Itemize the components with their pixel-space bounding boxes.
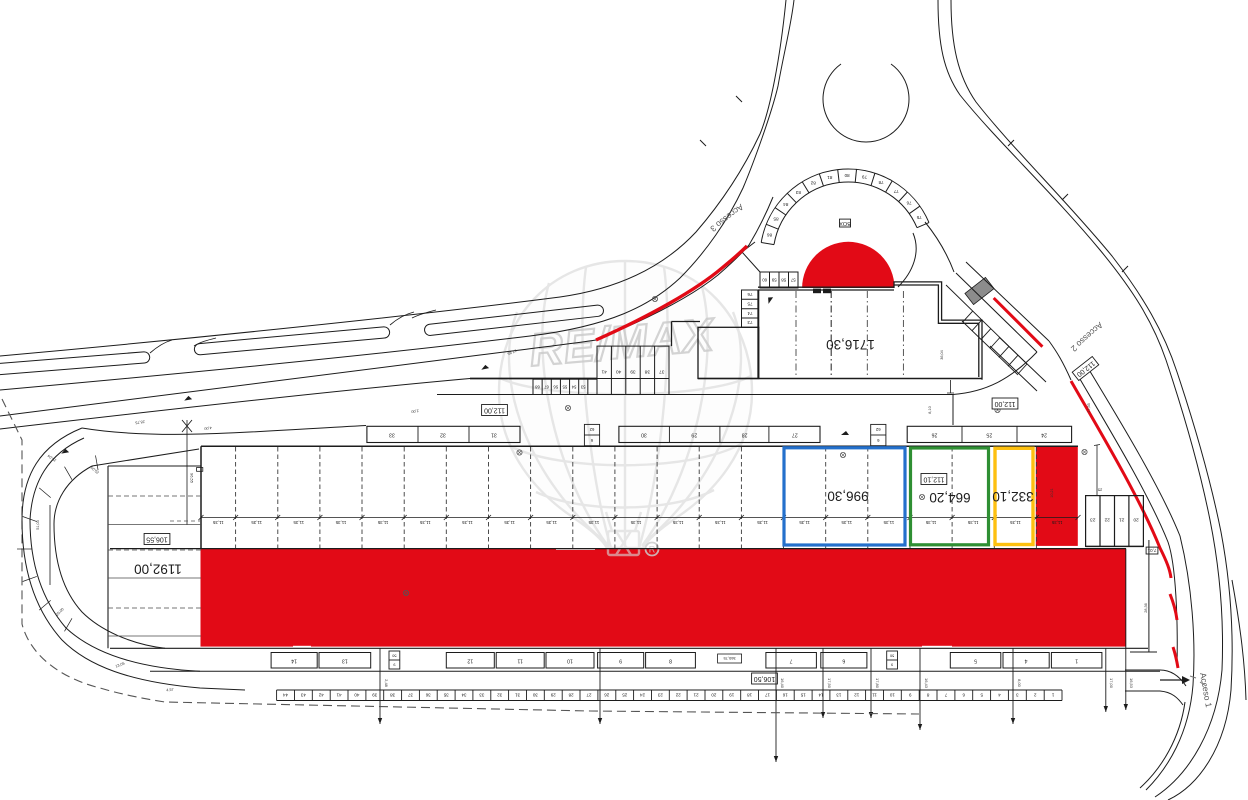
svg-text:54: 54 — [571, 385, 576, 390]
svg-text:7: 7 — [790, 657, 793, 663]
svg-text:43: 43 — [300, 693, 306, 698]
svg-text:17,80: 17,80 — [875, 678, 880, 689]
svg-text:112,10: 112,10 — [923, 476, 944, 483]
svg-text:4: 4 — [1025, 657, 1028, 663]
svg-text:75: 75 — [916, 215, 922, 220]
svg-text:11,35: 11,35 — [672, 520, 683, 525]
svg-text:360,75: 360,75 — [723, 656, 736, 661]
svg-text:9: 9 — [619, 657, 622, 663]
svg-text:19: 19 — [729, 693, 735, 698]
svg-text:34: 34 — [461, 693, 467, 698]
svg-text:6: 6 — [842, 657, 845, 663]
svg-text:996,30: 996,30 — [827, 489, 868, 504]
svg-text:58: 58 — [781, 278, 786, 283]
svg-text:82: 82 — [810, 181, 816, 186]
svg-text:10: 10 — [889, 693, 895, 698]
svg-text:20: 20 — [1133, 517, 1139, 523]
svg-text:77: 77 — [893, 189, 899, 194]
svg-text:73: 73 — [747, 320, 753, 325]
svg-text:36: 36 — [425, 693, 431, 698]
svg-text:36,04: 36,04 — [940, 350, 944, 360]
svg-text:62: 62 — [875, 427, 880, 432]
svg-text:11,35: 11,35 — [1010, 520, 1021, 525]
svg-text:11,35: 11,35 — [546, 520, 557, 525]
svg-text:8: 8 — [669, 657, 672, 663]
svg-text:35: 35 — [443, 693, 449, 698]
svg-text:11,35: 11,35 — [757, 520, 768, 525]
svg-text:23: 23 — [657, 693, 663, 698]
svg-text:11: 11 — [517, 657, 522, 663]
svg-text:11: 11 — [872, 693, 877, 698]
svg-text:60: 60 — [762, 278, 767, 283]
svg-text:24: 24 — [640, 693, 646, 698]
svg-text:78: 78 — [878, 180, 884, 185]
svg-text:22: 22 — [675, 693, 681, 698]
svg-text:27: 27 — [586, 693, 592, 698]
svg-text:53: 53 — [580, 385, 585, 390]
svg-text:29: 29 — [550, 693, 556, 698]
svg-text:40: 40 — [354, 693, 360, 698]
svg-text:10: 10 — [567, 657, 573, 663]
svg-text:23: 23 — [1090, 517, 1096, 523]
svg-text:11,35: 11,35 — [504, 520, 515, 525]
svg-text:41: 41 — [336, 693, 342, 698]
svg-text:17: 17 — [765, 693, 771, 698]
svg-text:14: 14 — [291, 657, 297, 663]
svg-text:83: 83 — [795, 190, 801, 195]
svg-text:R: R — [649, 545, 656, 555]
svg-text:9: 9 — [393, 663, 395, 667]
svg-text:10,21: 10,21 — [1050, 488, 1054, 498]
svg-text:112,00: 112,00 — [484, 407, 505, 414]
svg-text:11,35: 11,35 — [377, 520, 388, 525]
svg-text:11,35: 11,35 — [251, 520, 262, 525]
svg-text:75: 75 — [747, 301, 753, 306]
svg-text:13: 13 — [836, 693, 842, 698]
svg-text:81: 81 — [827, 175, 833, 180]
svg-text:30: 30 — [532, 693, 538, 698]
svg-text:57: 57 — [790, 278, 795, 283]
svg-text:37: 37 — [408, 693, 414, 698]
svg-text:42: 42 — [318, 693, 324, 698]
svg-text:8,00: 8,00 — [1017, 679, 1022, 688]
svg-text:84: 84 — [783, 202, 789, 207]
svg-text:25: 25 — [622, 693, 628, 698]
svg-text:26: 26 — [932, 431, 938, 437]
svg-text:11,35: 11,35 — [630, 520, 641, 525]
svg-text:18: 18 — [747, 693, 753, 698]
svg-text:24: 24 — [1041, 431, 1047, 437]
svg-text:37: 37 — [659, 369, 665, 375]
svg-text:25: 25 — [1097, 488, 1102, 493]
svg-text:5: 5 — [974, 657, 977, 663]
svg-text:11,35: 11,35 — [967, 520, 978, 525]
svg-text:17,55: 17,55 — [1087, 403, 1091, 413]
svg-text:33: 33 — [389, 431, 395, 437]
svg-text:67: 67 — [544, 385, 549, 390]
svg-text:1192,00: 1192,00 — [134, 562, 182, 577]
svg-text:20: 20 — [711, 693, 717, 698]
svg-text:16,43: 16,43 — [924, 678, 929, 689]
svg-text:21: 21 — [693, 693, 699, 698]
svg-text:55: 55 — [562, 385, 567, 390]
svg-text:112,00: 112,00 — [994, 400, 1015, 407]
svg-text:11,35: 11,35 — [714, 520, 725, 525]
svg-text:38: 38 — [390, 693, 396, 698]
svg-text:11,35: 11,35 — [293, 520, 304, 525]
svg-text:59: 59 — [771, 278, 776, 283]
svg-text:BOX: BOX — [839, 220, 851, 226]
svg-text:76: 76 — [906, 201, 912, 206]
svg-text:4,57: 4,57 — [166, 688, 174, 693]
svg-text:332,10: 332,10 — [992, 489, 1033, 504]
svg-text:11,35: 11,35 — [462, 520, 473, 525]
svg-text:68: 68 — [535, 385, 540, 390]
svg-text:8,10: 8,10 — [928, 406, 932, 413]
svg-text:22: 22 — [1104, 517, 1110, 523]
svg-text:11,35: 11,35 — [588, 520, 599, 525]
svg-text:11,35: 11,35 — [799, 520, 810, 525]
svg-text:25: 25 — [986, 431, 992, 437]
svg-text:80: 80 — [844, 173, 850, 178]
svg-text:31: 31 — [515, 693, 521, 698]
svg-text:32: 32 — [497, 693, 503, 698]
svg-text:17,00: 17,00 — [1109, 678, 1114, 689]
svg-text:29: 29 — [691, 431, 697, 437]
svg-text:33: 33 — [479, 693, 485, 698]
svg-text:17,50: 17,50 — [827, 678, 832, 689]
svg-text:86: 86 — [767, 233, 773, 238]
svg-text:76: 76 — [747, 292, 753, 297]
svg-text:28: 28 — [742, 431, 748, 437]
svg-text:106,55: 106,55 — [146, 536, 168, 543]
svg-text:11,35: 11,35 — [883, 520, 894, 525]
svg-text:51,03: 51,03 — [36, 520, 40, 530]
svg-text:11,35: 11,35 — [419, 520, 430, 525]
svg-text:12: 12 — [854, 693, 860, 698]
svg-text:9: 9 — [891, 663, 893, 667]
svg-text:39: 39 — [372, 693, 378, 698]
svg-text:1: 1 — [1075, 657, 1078, 663]
svg-text:26: 26 — [604, 693, 610, 698]
svg-text:56: 56 — [553, 385, 558, 390]
svg-text:38: 38 — [644, 369, 650, 375]
svg-text:50: 50 — [890, 654, 894, 658]
svg-text:11,35: 11,35 — [925, 520, 936, 525]
svg-text:28,36: 28,36 — [1144, 603, 1148, 613]
svg-text:32: 32 — [440, 431, 446, 437]
svg-text:44: 44 — [283, 693, 289, 698]
svg-text:664,20: 664,20 — [929, 490, 970, 505]
svg-text:50: 50 — [392, 654, 396, 658]
svg-text:1716,30: 1716,30 — [826, 337, 875, 352]
svg-text:30: 30 — [641, 431, 647, 437]
svg-text:74: 74 — [747, 311, 753, 316]
svg-text:11,35: 11,35 — [1051, 520, 1062, 525]
svg-text:79: 79 — [862, 175, 868, 180]
svg-text:21: 21 — [1119, 517, 1125, 523]
svg-text:41: 41 — [601, 369, 607, 375]
svg-text:31: 31 — [491, 431, 497, 437]
svg-text:2,48: 2,48 — [384, 679, 389, 688]
svg-text:13: 13 — [342, 657, 348, 663]
svg-text:15: 15 — [800, 693, 806, 698]
svg-text:12: 12 — [467, 657, 473, 663]
svg-text:16,53: 16,53 — [1129, 678, 1134, 689]
svg-text:11,35: 11,35 — [212, 520, 223, 525]
svg-text:16,40: 16,40 — [780, 678, 785, 689]
svg-text:85: 85 — [773, 216, 779, 221]
svg-text:28: 28 — [568, 693, 574, 698]
svg-text:106,50: 106,50 — [754, 675, 776, 682]
svg-text:40: 40 — [616, 369, 622, 375]
svg-text:39: 39 — [630, 369, 636, 375]
svg-text:11,35: 11,35 — [335, 520, 346, 525]
svg-text:16: 16 — [782, 693, 788, 698]
svg-text:62: 62 — [589, 427, 594, 432]
svg-text:11,35: 11,35 — [841, 520, 852, 525]
svg-text:96,55: 96,55 — [190, 473, 195, 484]
svg-text:27: 27 — [792, 431, 798, 437]
